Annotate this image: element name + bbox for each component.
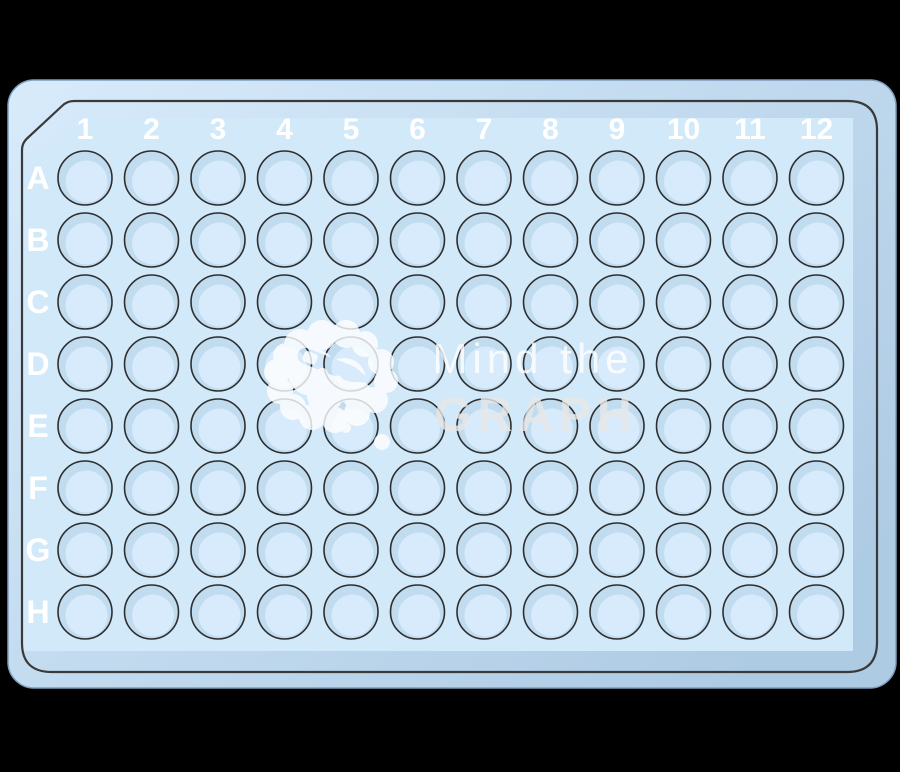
well-G2 xyxy=(125,523,179,577)
well-F10 xyxy=(657,461,711,515)
well-B8 xyxy=(524,213,578,267)
well-H10 xyxy=(657,585,711,639)
well-G12 xyxy=(790,523,844,577)
well-G4 xyxy=(258,523,312,577)
well-B10 xyxy=(657,213,711,267)
well-C7 xyxy=(457,275,511,329)
well-H12 xyxy=(790,585,844,639)
row-label-D: D xyxy=(26,346,49,382)
well-E1 xyxy=(58,399,112,453)
well-B2 xyxy=(125,213,179,267)
well-D2 xyxy=(125,337,179,391)
well-G7 xyxy=(457,523,511,577)
row-label-G: G xyxy=(26,532,51,568)
column-label-5: 5 xyxy=(343,113,360,146)
well-G9 xyxy=(590,523,644,577)
well-G5 xyxy=(324,523,378,577)
well-F6 xyxy=(391,461,445,515)
column-label-2: 2 xyxy=(143,113,160,146)
well-H3 xyxy=(191,585,245,639)
well-C9 xyxy=(590,275,644,329)
well-B5 xyxy=(324,213,378,267)
row-label-E: E xyxy=(27,408,48,444)
well-H6 xyxy=(391,585,445,639)
well-H4 xyxy=(258,585,312,639)
well-A9 xyxy=(590,151,644,205)
well-F4 xyxy=(258,461,312,515)
thought-bubble-dot-large xyxy=(374,434,390,450)
well-E10 xyxy=(657,399,711,453)
column-label-4: 4 xyxy=(276,113,293,146)
well-G8 xyxy=(524,523,578,577)
well-F9 xyxy=(590,461,644,515)
well-H8 xyxy=(524,585,578,639)
well-B12 xyxy=(790,213,844,267)
well-H1 xyxy=(58,585,112,639)
thought-bubble-dot-small xyxy=(341,423,351,433)
well-A3 xyxy=(191,151,245,205)
column-label-9: 9 xyxy=(609,113,626,146)
column-label-10: 10 xyxy=(667,113,700,146)
well-B7 xyxy=(457,213,511,267)
well-E12 xyxy=(790,399,844,453)
well-A12 xyxy=(790,151,844,205)
well-F12 xyxy=(790,461,844,515)
well-F3 xyxy=(191,461,245,515)
well-B3 xyxy=(191,213,245,267)
row-label-C: C xyxy=(26,284,49,320)
well-A10 xyxy=(657,151,711,205)
column-label-12: 12 xyxy=(800,113,833,146)
well-C1 xyxy=(58,275,112,329)
row-label-F: F xyxy=(28,470,48,506)
well-F11 xyxy=(723,461,777,515)
well-A7 xyxy=(457,151,511,205)
well-B4 xyxy=(258,213,312,267)
well-C8 xyxy=(524,275,578,329)
well-B9 xyxy=(590,213,644,267)
well-A4 xyxy=(258,151,312,205)
well-H5 xyxy=(324,585,378,639)
well-A1 xyxy=(58,151,112,205)
well-G6 xyxy=(391,523,445,577)
column-label-11: 11 xyxy=(734,113,766,146)
well-B11 xyxy=(723,213,777,267)
well-C2 xyxy=(125,275,179,329)
column-label-8: 8 xyxy=(542,113,559,146)
well-A5 xyxy=(324,151,378,205)
watermark-text-line1: Mind the xyxy=(432,335,633,382)
well-F1 xyxy=(58,461,112,515)
well-A11 xyxy=(723,151,777,205)
watermark-text-line2: GRAPH xyxy=(434,389,637,442)
well-F2 xyxy=(125,461,179,515)
well-A8 xyxy=(524,151,578,205)
well-D3 xyxy=(191,337,245,391)
well-D10 xyxy=(657,337,711,391)
well-G10 xyxy=(657,523,711,577)
well-C3 xyxy=(191,275,245,329)
well-G3 xyxy=(191,523,245,577)
column-label-7: 7 xyxy=(476,113,493,146)
well-C12 xyxy=(790,275,844,329)
well-D1 xyxy=(58,337,112,391)
well-D11 xyxy=(723,337,777,391)
well-C10 xyxy=(657,275,711,329)
well-A6 xyxy=(391,151,445,205)
well-H9 xyxy=(590,585,644,639)
well-C11 xyxy=(723,275,777,329)
well-G11 xyxy=(723,523,777,577)
well-plate-svg: 123456789101112 ABCDEFGH Mind the GRAPH xyxy=(0,0,900,772)
well-B1 xyxy=(58,213,112,267)
well-A2 xyxy=(125,151,179,205)
well-F7 xyxy=(457,461,511,515)
column-label-1: 1 xyxy=(77,113,94,146)
row-label-H: H xyxy=(26,594,49,630)
well-F8 xyxy=(524,461,578,515)
well-H11 xyxy=(723,585,777,639)
plate-illustration: 123456789101112 ABCDEFGH Mind the GRAPH xyxy=(0,0,900,772)
column-label-6: 6 xyxy=(409,113,426,146)
well-D12 xyxy=(790,337,844,391)
well-B6 xyxy=(391,213,445,267)
row-label-A: A xyxy=(26,160,49,196)
well-H2 xyxy=(125,585,179,639)
column-label-3: 3 xyxy=(210,113,227,146)
row-label-B: B xyxy=(26,222,49,258)
well-E11 xyxy=(723,399,777,453)
well-E3 xyxy=(191,399,245,453)
well-G1 xyxy=(58,523,112,577)
cloud-pencil-icon xyxy=(258,314,404,450)
well-F5 xyxy=(324,461,378,515)
well-H7 xyxy=(457,585,511,639)
well-E2 xyxy=(125,399,179,453)
